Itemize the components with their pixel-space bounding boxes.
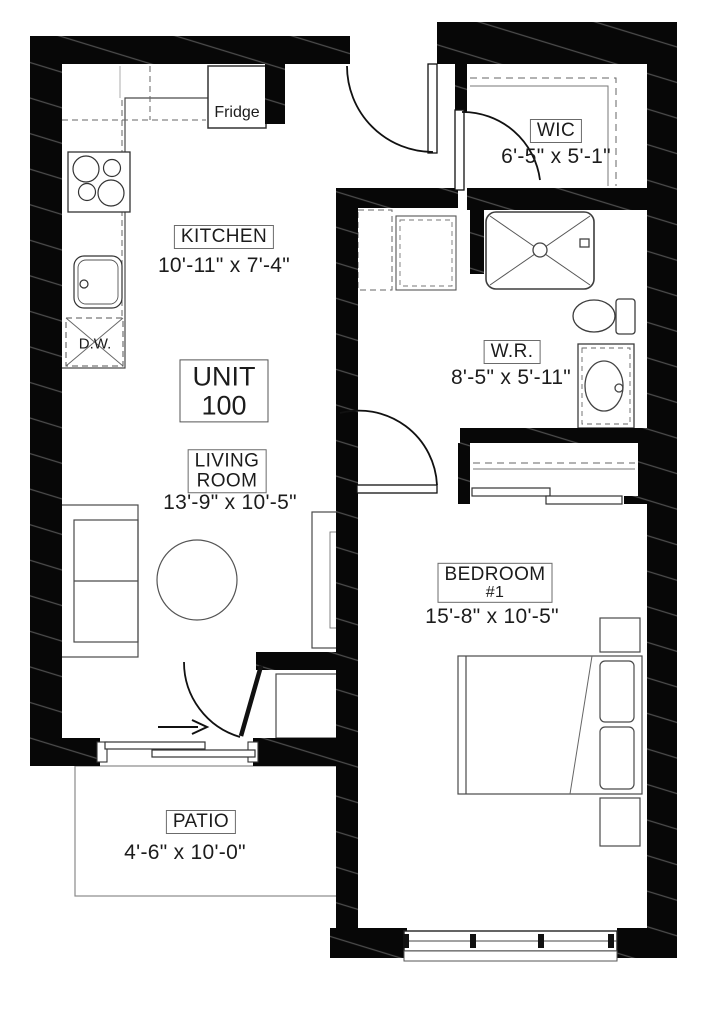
living-furniture: [60, 505, 340, 738]
storage-door-leaf: [241, 666, 261, 736]
wall: [458, 443, 470, 504]
blanket-fold-line: [570, 656, 592, 794]
closet-bypass-door: [472, 488, 550, 496]
wall: [467, 188, 647, 210]
bedroom-label-line1: BEDROOM: [445, 565, 546, 585]
closet-bypass-door: [546, 496, 622, 504]
patio-sliding-door-panel: [152, 750, 255, 757]
wic-door-leaf: [455, 110, 464, 190]
living-room-label-line1: LIVING: [195, 451, 260, 471]
unit-number: 100: [193, 391, 256, 420]
floor-plan: KITCHEN 10'-11" x 7'-4" WIC 6'-5" x 5'-1…: [0, 0, 708, 1024]
kitchen-dims: 10'-11" x 7'-4": [158, 254, 290, 278]
bedroom-window: [403, 931, 617, 961]
wall: [256, 652, 345, 670]
wall: [437, 22, 677, 64]
wall: [253, 738, 345, 766]
living-room-label-line2: ROOM: [195, 471, 260, 491]
bedroom-furniture: [458, 618, 642, 846]
wall: [460, 428, 647, 443]
wall: [336, 188, 458, 208]
unit-label: UNIT 100: [180, 359, 269, 422]
bedroom-label-line2: #1: [445, 585, 546, 602]
window-mullion: [538, 934, 544, 948]
nightstand: [600, 798, 640, 846]
wall: [265, 64, 285, 124]
media-console-inner: [330, 532, 337, 628]
patio-sliding-door-panel: [105, 742, 205, 749]
laundry-unit-dashed: [400, 220, 452, 286]
toilet-tank: [616, 299, 635, 334]
wall: [638, 443, 647, 504]
living-room-label: LIVING ROOM: [188, 449, 267, 493]
storage-door-swing-arc: [184, 662, 240, 737]
bathroom-fixtures: [358, 210, 635, 428]
wall: [624, 496, 640, 504]
stove: [68, 152, 130, 212]
living-room-dims: 13'-9" x 10'-5": [163, 491, 297, 515]
wr-dims: 8'-5" x 5'-11": [451, 366, 571, 390]
wall: [30, 738, 100, 766]
wr-door-leaf: [357, 485, 437, 493]
vanity: [578, 344, 634, 428]
window-mullion: [470, 934, 476, 948]
window-sill: [404, 951, 617, 961]
dishwasher-label: D.W.: [79, 336, 112, 353]
wic-label: WIC: [530, 119, 582, 143]
wall: [330, 928, 407, 958]
wall: [455, 53, 467, 112]
nightstand: [600, 618, 640, 652]
pillow: [600, 661, 634, 722]
fridge-label: Fridge: [214, 104, 259, 122]
entry-door-leaf: [428, 64, 437, 153]
bedroom-dims: 15'-8" x 10'-5": [425, 605, 559, 629]
entry-door-swing-arc: [347, 66, 433, 152]
pillow: [600, 727, 634, 789]
window-mullion: [403, 934, 409, 948]
window-mullion: [608, 934, 614, 948]
coffee-table: [157, 540, 237, 620]
wall: [617, 928, 677, 958]
kitchen-label: KITCHEN: [174, 225, 274, 249]
entry-storage: [276, 674, 338, 738]
unit-name: UNIT: [193, 362, 256, 391]
laundry-unit: [358, 210, 392, 290]
shower-drain-icon: [533, 243, 547, 257]
wr-label: W.R.: [484, 340, 541, 364]
toilet-bowl: [573, 300, 615, 332]
wall: [647, 22, 677, 958]
laundry-unit: [396, 216, 456, 290]
wall: [336, 188, 358, 928]
bedroom-closet: [473, 463, 635, 469]
bedroom-label: BEDROOM #1: [438, 563, 553, 603]
wall: [30, 36, 62, 766]
patio-label: PATIO: [166, 810, 236, 834]
patio-dims: 4'-6" x 10'-0": [124, 841, 246, 865]
wic-dims: 6'-5" x 5'-1": [501, 145, 611, 169]
wall: [470, 210, 484, 274]
wall: [30, 36, 350, 64]
